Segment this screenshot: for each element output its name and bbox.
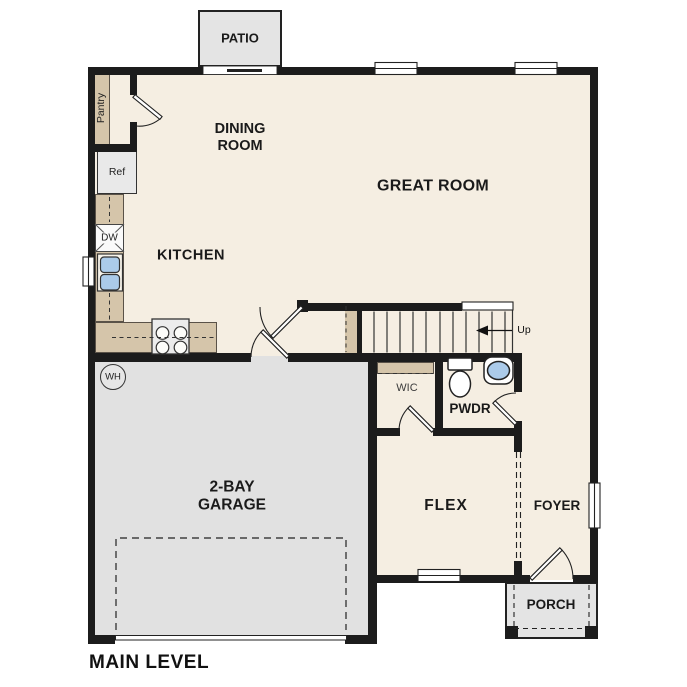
pantry-label: Pantry bbox=[95, 93, 107, 123]
stove-icon bbox=[152, 319, 189, 354]
door-pwdr bbox=[493, 393, 517, 425]
dishwasher-label: DW bbox=[100, 233, 119, 244]
dining-line2: ROOM bbox=[217, 138, 262, 154]
door-pantry bbox=[133, 95, 162, 127]
room-label-flex: FLEX bbox=[424, 497, 468, 515]
room-label-foyer: FOYER bbox=[534, 498, 581, 514]
room-label-pwdr: PWDR bbox=[449, 401, 490, 417]
page-title: MAIN LEVEL bbox=[89, 652, 209, 674]
floorplan-canvas: PATIO DINING ROOM GREAT ROOM KITCHEN 2-B… bbox=[0, 0, 687, 687]
room-label-wic: WIC bbox=[396, 382, 417, 394]
water-heater-label: WH bbox=[105, 372, 121, 383]
foyer-cased-opening-dashed bbox=[517, 452, 521, 561]
refrigerator-label: Ref bbox=[109, 166, 125, 178]
door-front-entry bbox=[530, 548, 573, 580]
garage-line2: GARAGE bbox=[198, 497, 266, 514]
garage-door-dashed bbox=[116, 538, 346, 630]
toilet-icon bbox=[448, 358, 472, 397]
door-wic bbox=[399, 406, 434, 432]
room-label-patio: PATIO bbox=[221, 30, 259, 45]
room-label-kitchen: KITCHEN bbox=[157, 247, 225, 264]
sliding-door-icon bbox=[203, 66, 277, 75]
dining-line1: DINING bbox=[215, 121, 266, 137]
room-label-garage: 2-BAY GARAGE bbox=[198, 479, 266, 516]
door-hall-to-garage bbox=[251, 330, 289, 358]
room-label-great-room: GREAT ROOM bbox=[377, 178, 489, 197]
room-label-porch: PORCH bbox=[527, 597, 576, 613]
up-label: Up bbox=[517, 324, 530, 336]
sink-icon bbox=[484, 357, 513, 384]
stair-railing bbox=[462, 302, 513, 310]
kitchen-sink-icon bbox=[98, 254, 123, 291]
garage-door-panel bbox=[116, 636, 347, 641]
garage-line1: 2-BAY bbox=[209, 479, 254, 496]
room-label-dining: DINING ROOM bbox=[215, 121, 266, 155]
up-arrow-icon bbox=[476, 326, 512, 336]
